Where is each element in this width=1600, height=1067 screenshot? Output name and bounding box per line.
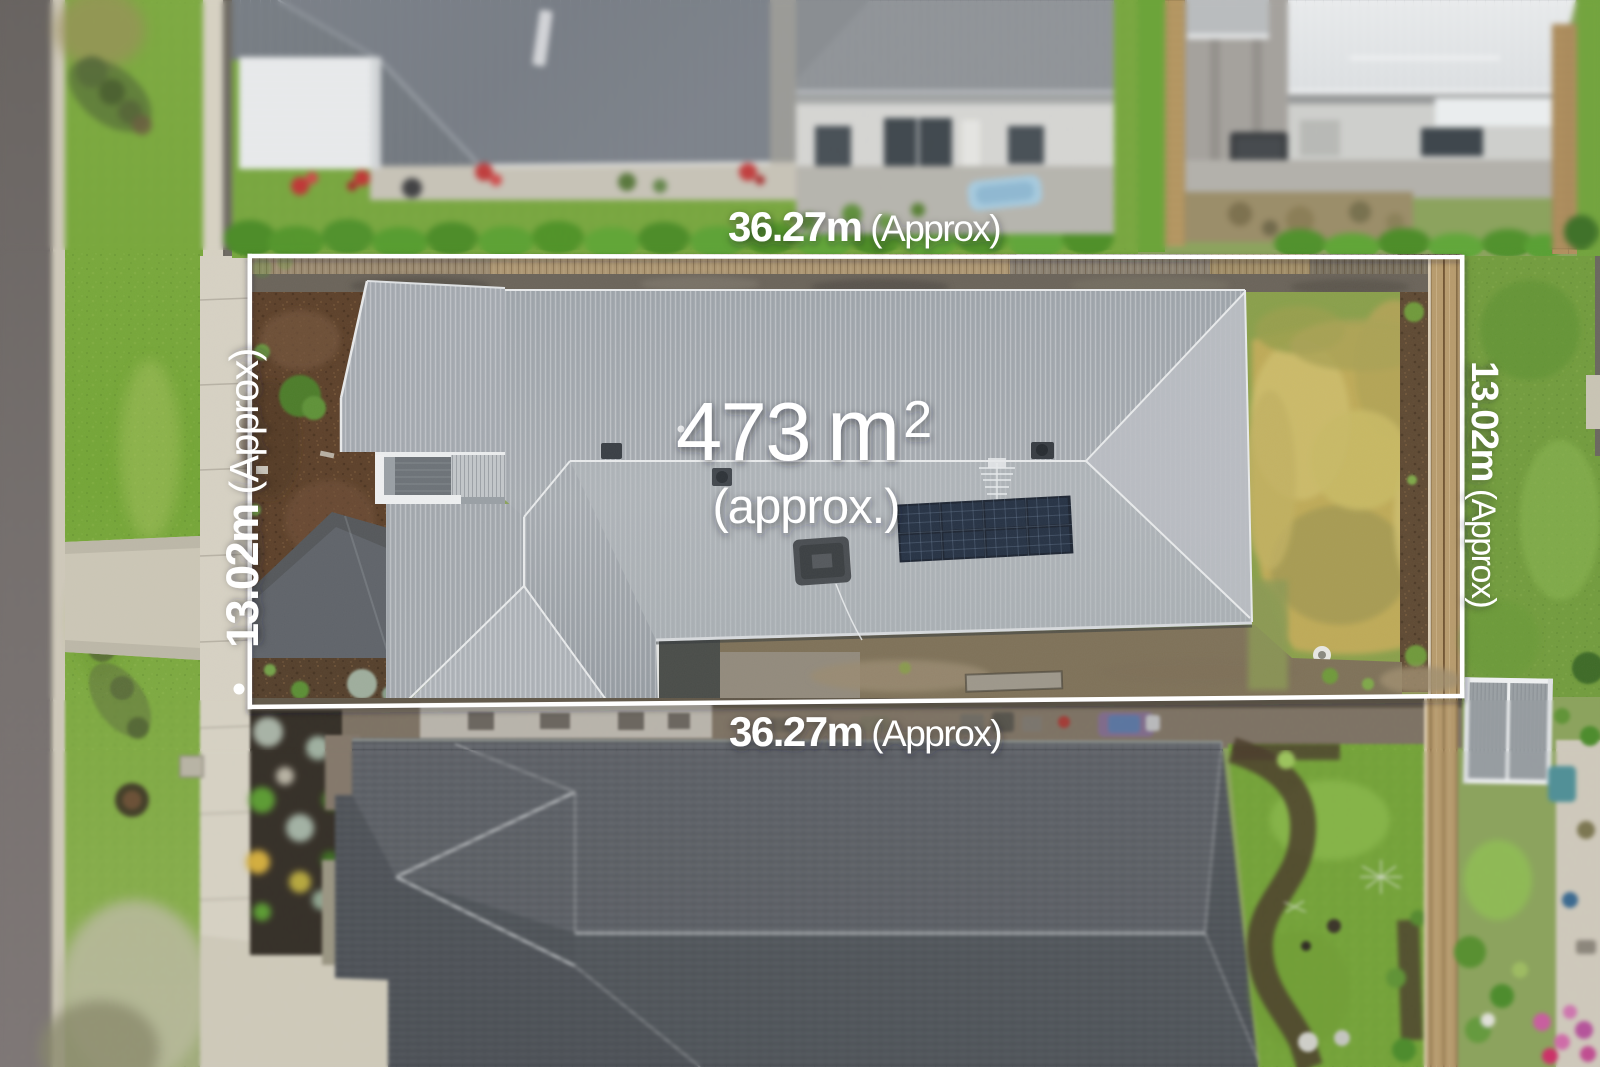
svg-text:13.02m (Approx): 13.02m (Approx) xyxy=(217,349,268,648)
svg-text:36.27m (Approx): 36.27m (Approx) xyxy=(728,203,1000,250)
svg-text:(approx.): (approx.) xyxy=(712,480,899,534)
svg-text:473m2: 473m2 xyxy=(676,380,931,479)
svg-text:36.27m (Approx): 36.27m (Approx) xyxy=(729,708,1001,755)
svg-text:13.02m (Approx): 13.02m (Approx) xyxy=(1463,361,1505,607)
